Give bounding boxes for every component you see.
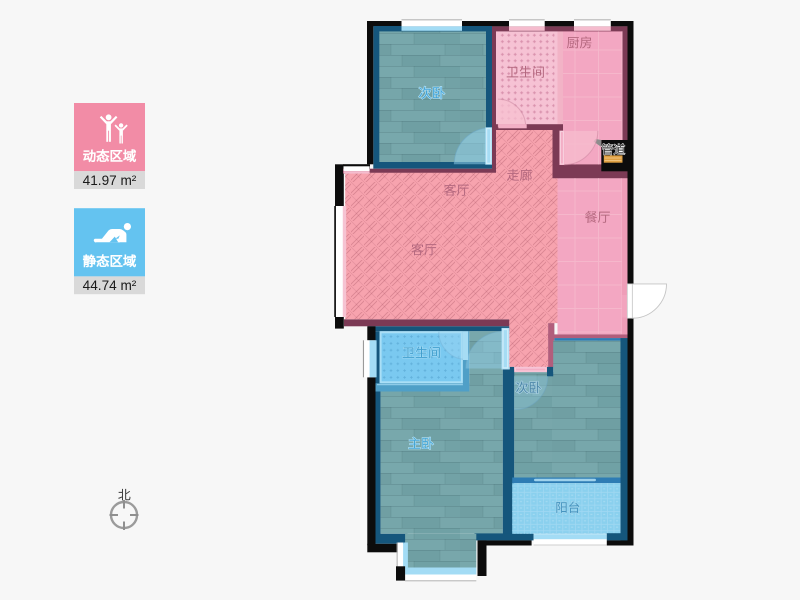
svg-text:41.97 m²: 41.97 m² xyxy=(83,173,137,188)
svg-text:44.74 m²: 44.74 m² xyxy=(83,278,137,293)
